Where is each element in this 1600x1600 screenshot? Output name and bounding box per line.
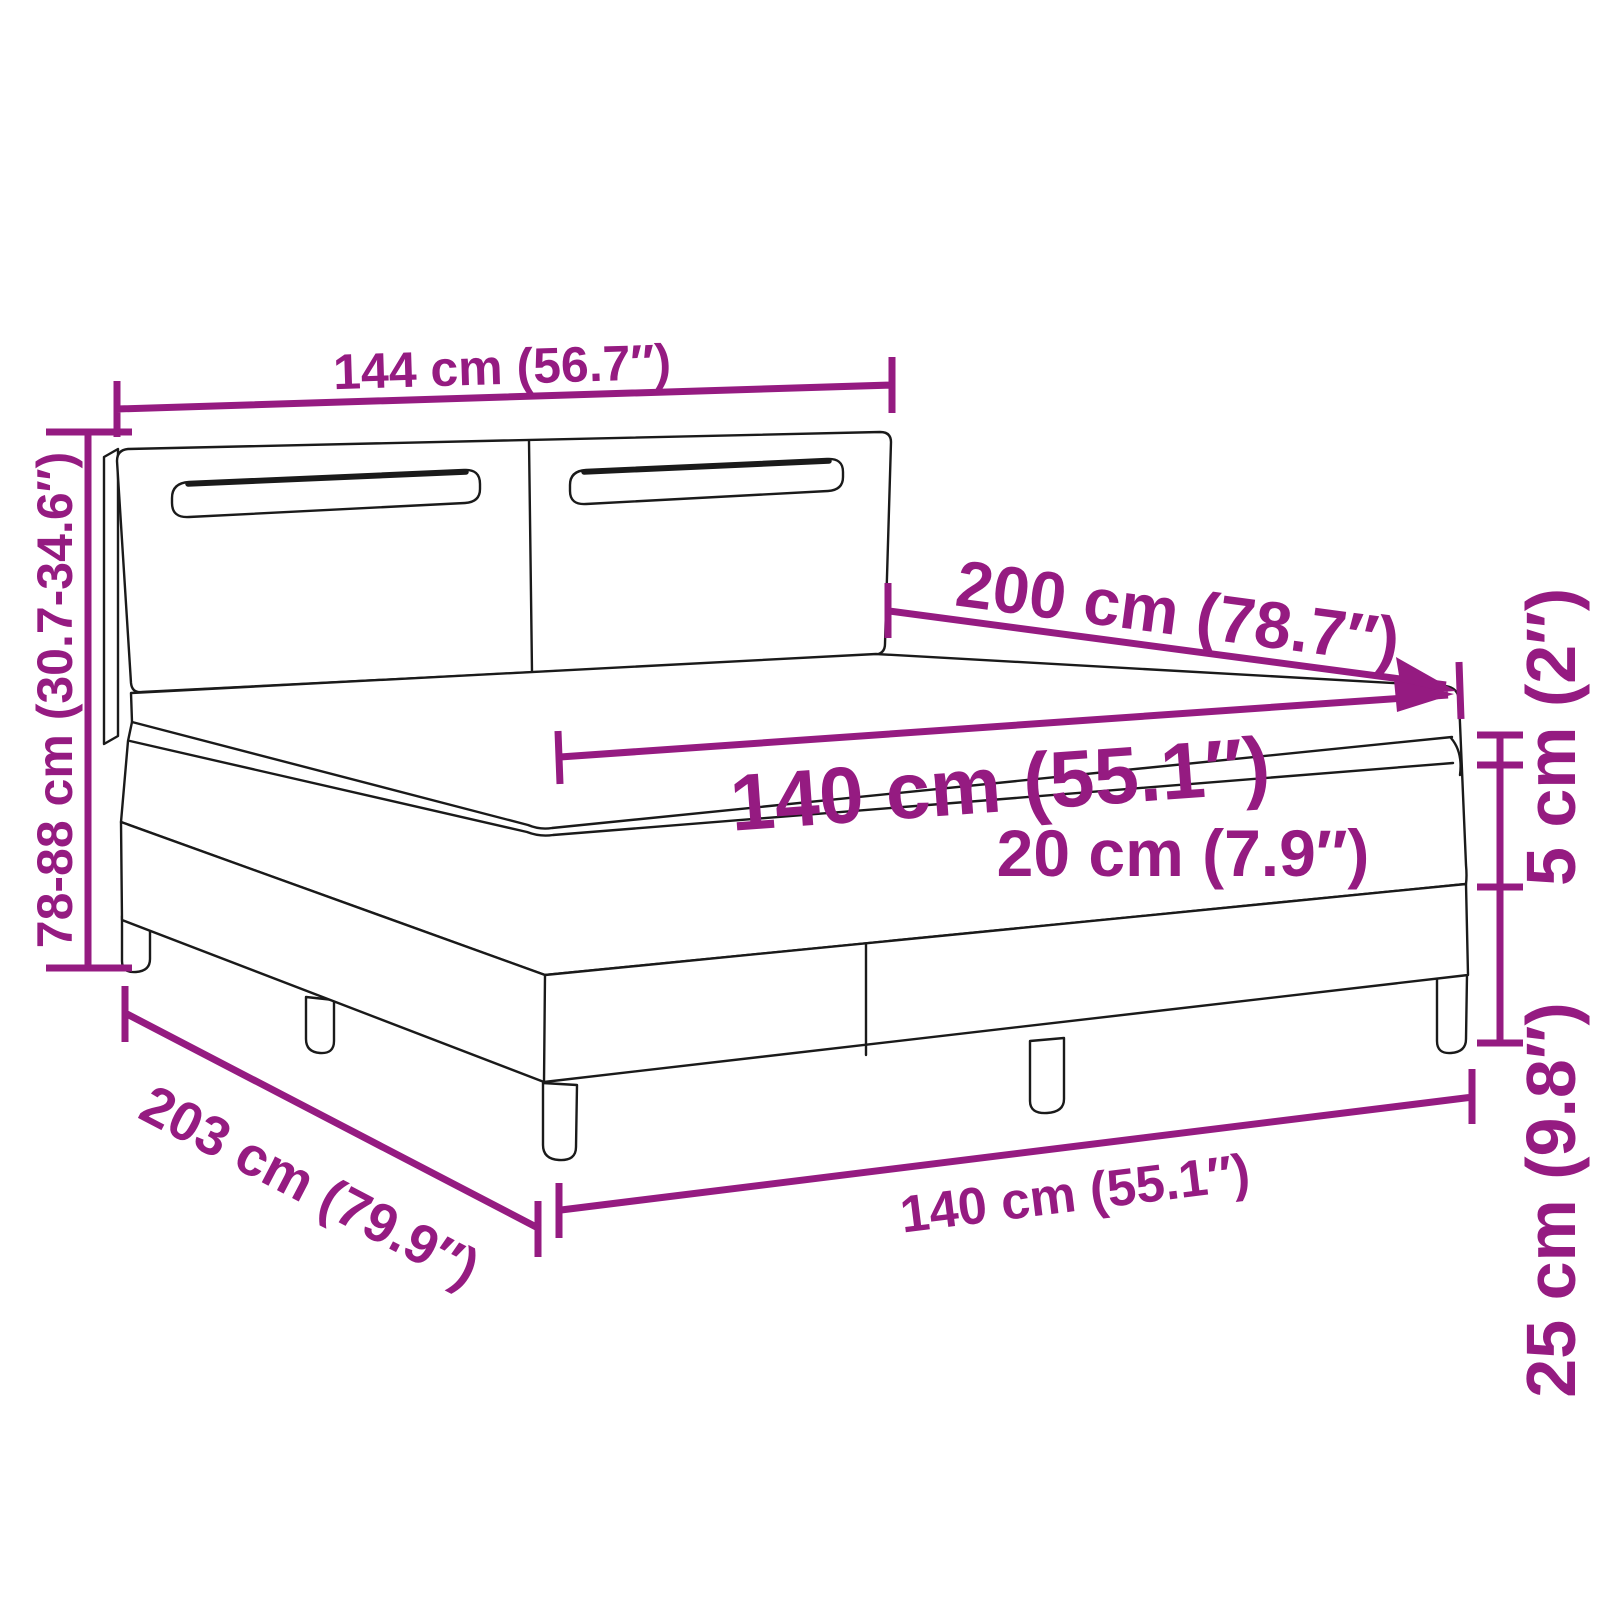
dim-base-width: 140 cm (55.1″)	[559, 1069, 1473, 1245]
dim-mattress-height-label: 20 cm (7.9″)	[997, 816, 1370, 890]
dim-base-height-label: 25 cm (9.8″)	[1512, 1002, 1590, 1397]
dim-bed-length-label: 200 cm (78.7″)	[952, 546, 1404, 678]
bed-dimension-diagram: 144 cm (56.7″) 78-88 cm (30.7-34.6″) 200…	[0, 0, 1600, 1600]
bed-leg-right	[1437, 975, 1467, 1053]
bed-leg-foot-middle	[1030, 1038, 1064, 1113]
dim-mattress-height: 20 cm (7.9″)	[997, 816, 1370, 890]
box-corner-edge	[544, 975, 545, 1082]
headboard-side-panel	[104, 449, 118, 744]
diagram-svg: 144 cm (56.7″) 78-88 cm (30.7-34.6″) 200…	[0, 0, 1600, 1600]
dim-headboard-height-label: 78-88 cm (30.7-34.6″)	[27, 452, 83, 948]
bed-leg-corner	[543, 1083, 577, 1160]
bed-leg-side-middle	[306, 997, 334, 1053]
dim-headboard-width-label: 144 cm (56.7″)	[332, 334, 672, 401]
dim-topper-height-label: 5 cm (2″)	[1512, 588, 1590, 886]
dim-headboard-width: 144 cm (56.7″)	[117, 334, 892, 437]
dim-right-stack: 25 cm (9.8″) 5 cm (2″)	[1477, 588, 1590, 1398]
